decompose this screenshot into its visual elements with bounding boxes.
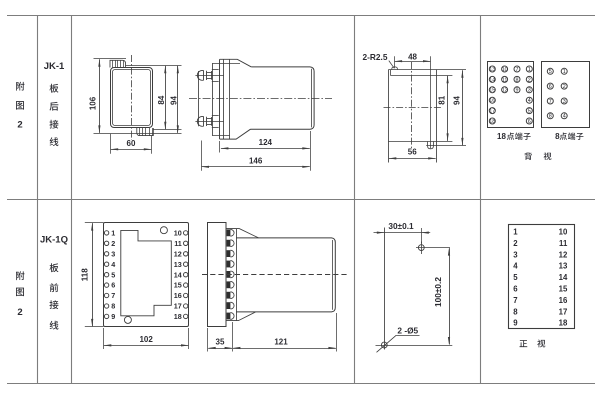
svg-text:35: 35 <box>216 338 225 347</box>
svg-text:121: 121 <box>274 338 288 347</box>
svg-text:5: 5 <box>549 69 552 75</box>
svg-text:8: 8 <box>513 307 518 316</box>
svg-text:12: 12 <box>502 88 508 94</box>
svg-text:6: 6 <box>513 285 518 294</box>
svg-text:17: 17 <box>489 109 495 115</box>
svg-text:16: 16 <box>559 296 568 305</box>
svg-text:7: 7 <box>513 296 517 305</box>
svg-text:18: 18 <box>489 119 495 125</box>
svg-text:2 -Ø5: 2 -Ø5 <box>397 325 418 335</box>
svg-text:2: 2 <box>528 77 531 83</box>
svg-text:JK-1Q: JK-1Q <box>40 235 68 246</box>
svg-text:17: 17 <box>559 307 568 316</box>
svg-text:10: 10 <box>174 229 182 238</box>
svg-text:15: 15 <box>489 88 495 94</box>
svg-text:14: 14 <box>174 270 182 279</box>
svg-text:14: 14 <box>559 273 568 282</box>
svg-text:30±0.1: 30±0.1 <box>388 221 414 231</box>
svg-text:12: 12 <box>559 250 568 259</box>
svg-text:94: 94 <box>452 96 461 105</box>
svg-text:2: 2 <box>513 239 518 248</box>
svg-text:4: 4 <box>563 114 566 120</box>
svg-text:2: 2 <box>563 84 566 90</box>
svg-text:1: 1 <box>563 69 566 75</box>
svg-text:15: 15 <box>174 281 182 290</box>
svg-text:11: 11 <box>174 239 182 248</box>
svg-text:8: 8 <box>516 77 519 83</box>
svg-text:7: 7 <box>111 291 115 300</box>
svg-text:11: 11 <box>559 239 568 248</box>
svg-text:94: 94 <box>169 96 178 105</box>
svg-text:102: 102 <box>139 335 153 344</box>
svg-text:8: 8 <box>549 114 552 120</box>
svg-text:12: 12 <box>174 249 182 258</box>
svg-text:13: 13 <box>489 67 495 73</box>
svg-text:3: 3 <box>513 250 518 259</box>
svg-text:5: 5 <box>111 270 115 279</box>
svg-text:7: 7 <box>516 67 519 73</box>
svg-text:5: 5 <box>513 273 518 282</box>
svg-text:6: 6 <box>111 281 115 290</box>
svg-text:48: 48 <box>408 52 417 61</box>
svg-text:106: 106 <box>88 96 97 110</box>
svg-text:124: 124 <box>259 138 273 147</box>
svg-text:2-R2.5: 2-R2.5 <box>363 52 388 62</box>
svg-text:9: 9 <box>111 312 115 321</box>
svg-text:13: 13 <box>174 260 182 269</box>
svg-text:1: 1 <box>528 67 531 73</box>
svg-text:2: 2 <box>111 239 115 248</box>
svg-text:8: 8 <box>555 132 560 141</box>
svg-text:15: 15 <box>559 285 568 294</box>
svg-text:6: 6 <box>528 119 531 125</box>
svg-text:60: 60 <box>127 139 136 148</box>
svg-text:8: 8 <box>111 302 115 311</box>
svg-text:JK-1: JK-1 <box>44 61 65 72</box>
svg-text:16: 16 <box>174 291 182 300</box>
svg-text:11: 11 <box>502 77 508 83</box>
svg-text:1: 1 <box>513 228 518 237</box>
svg-text:56: 56 <box>408 148 417 157</box>
svg-text:10: 10 <box>559 228 568 237</box>
svg-text:14: 14 <box>489 77 495 83</box>
svg-text:84: 84 <box>157 95 166 104</box>
svg-text:4: 4 <box>513 262 518 271</box>
svg-text:9: 9 <box>513 319 518 328</box>
svg-text:9: 9 <box>516 88 519 94</box>
svg-text:18: 18 <box>497 132 506 141</box>
svg-text:3: 3 <box>563 99 566 105</box>
svg-text:13: 13 <box>559 262 568 271</box>
svg-text:1: 1 <box>111 229 115 238</box>
svg-text:17: 17 <box>174 302 182 311</box>
svg-text:18: 18 <box>559 319 568 328</box>
svg-text:146: 146 <box>249 157 263 166</box>
svg-text:16: 16 <box>489 98 495 104</box>
svg-text:2: 2 <box>17 120 22 131</box>
svg-text:118: 118 <box>81 268 90 281</box>
svg-text:7: 7 <box>549 99 552 105</box>
svg-text:4: 4 <box>111 260 115 269</box>
svg-text:3: 3 <box>528 88 531 94</box>
svg-text:81: 81 <box>438 95 447 104</box>
svg-text:18: 18 <box>174 312 182 321</box>
svg-text:100±0.2: 100±0.2 <box>433 277 443 307</box>
svg-text:3: 3 <box>111 249 115 258</box>
svg-text:2: 2 <box>17 307 22 318</box>
svg-text:5: 5 <box>528 109 531 115</box>
svg-text:10: 10 <box>502 67 508 73</box>
svg-text:6: 6 <box>549 84 552 90</box>
svg-text:4: 4 <box>528 98 531 104</box>
